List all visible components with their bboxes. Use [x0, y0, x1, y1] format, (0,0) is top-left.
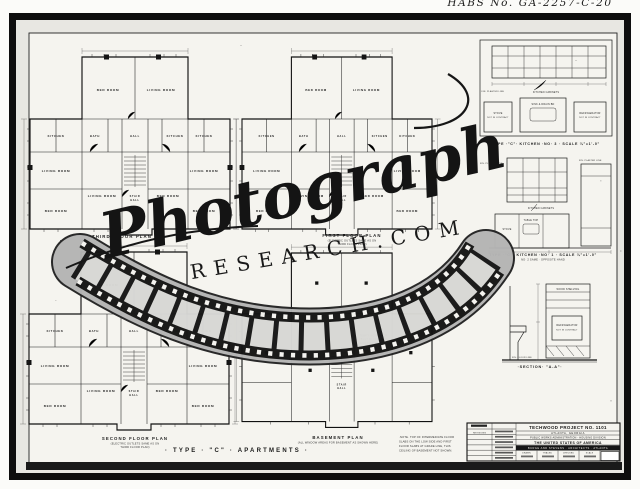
revisions-header-smudge — [471, 425, 487, 427]
cell-label: TRACED — [543, 452, 553, 455]
detail-label: WOOD SHELVING — [557, 288, 580, 291]
detail-label: KITCHEN CABINETS — [533, 91, 560, 94]
revisions-label: REVISIONS — [473, 432, 487, 434]
detail-label: FIN. FLOOR LINE — [512, 357, 532, 359]
drawing-number-cell — [601, 452, 619, 461]
scanned-blueprint-photo: BED ROOM LIVING ROOM BATH HALL KITCHEN K… — [0, 0, 640, 489]
project-admin: PUBLIC WORKS ADMINISTRATION - HOUSING DI… — [530, 437, 606, 440]
project-title: TECHWOOD PROJECT NO. 1101 — [529, 425, 607, 430]
project-usa: THE UNITED STATES OF AMERICA — [534, 441, 602, 445]
note-line: FLOOR SLABS AT GRADE LINE, THIS — [399, 444, 451, 448]
detail-label: REFRIGERATOR — [579, 112, 600, 115]
cell-label: SCALE — [586, 452, 594, 455]
second-plan-subcaption: THIRD FLOOR PLAN) — [120, 445, 149, 449]
detail-label: KITCHEN CABINETS — [528, 207, 555, 210]
note-line: CEILING OF BASEMENT NOT SHOWN. — [399, 449, 452, 453]
detail-label: SINK & DRAIN BD — [532, 103, 555, 106]
title-block: REVISIONS TECHWOOD PROJECT NO. 1101 ATLA… — [467, 423, 620, 461]
sheet-title: · TYPE · "C" · APARTMENTS · — [165, 448, 309, 454]
note-line: ·NOTE· TOP OF INTERMEDIATE FLOOR — [399, 435, 454, 439]
kitchen3-caption: TYPE ·"C"· KITCHEN ·NO· 3 · SCALE ¼"=1'-… — [492, 142, 600, 146]
blueprint-sheet-svg: BED ROOM LIVING ROOM BATH HALL KITCHEN K… — [0, 0, 640, 489]
cell-label: CHECKED — [563, 453, 575, 455]
kitchen1-subcaption: NO· 2 SAME · OPPOSITE HAND — [521, 258, 565, 262]
cell-label: DRAWN — [522, 452, 531, 455]
project-city: ATLANTA, GEORGIA — [551, 431, 585, 435]
detail-label: TABLE TOP — [524, 219, 539, 222]
basement-plan-caption: BASEMENT PLAN — [312, 435, 363, 440]
second-plan-caption: SECOND FLOOR PLAN — [102, 436, 168, 441]
detail-label: STOVE — [502, 228, 511, 231]
detail-label: REFRIGERATOR — [556, 324, 577, 327]
basement-plan-subcaption: (ALL WINDOW AREAS FOR BASEMENT AS SHOWN … — [298, 441, 378, 445]
detail-label: FIN. PLASTER LINE — [482, 90, 505, 93]
architects-label: BURGE AND STEVENS · ARCHITECTS · ATLANTA — [528, 446, 608, 450]
section-caption: ·SECTION· "A-A"· — [518, 365, 563, 369]
handwritten-archive-id: HABS No. GA-2257-C-20 — [446, 0, 612, 9]
sheet-bottom-shadow — [26, 462, 622, 470]
detail-label: NOT IN CONTRACT — [556, 329, 578, 332]
detail-label: FIN. PLASTER LINE — [579, 159, 602, 162]
note-line: SLABS ON THE LOW SIDE AND FIRST — [399, 440, 452, 444]
second-plan-subcaption: (ELECTRIC OUTLETS SAME AS ON — [111, 442, 160, 446]
detail-label: NOT IN CONTRACT — [579, 116, 601, 119]
